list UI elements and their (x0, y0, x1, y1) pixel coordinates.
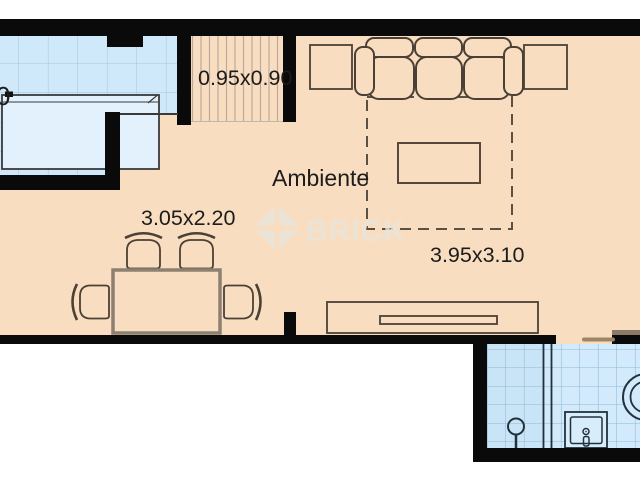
floorplan-drawing: Ambiente 0.95x0.90 3.05x2.20 3.95x3.10 0… (0, 0, 640, 480)
top-wall (0, 19, 640, 36)
chair-seat (224, 286, 253, 319)
floorplan: Ambiente 0.95x0.90 3.05x2.20 3.95x3.10 0… (0, 0, 640, 480)
tv-cabinet (327, 302, 538, 333)
coffee-table (398, 143, 480, 183)
closet-left-wall (177, 36, 191, 125)
bathroom-left-wall (473, 335, 487, 462)
dining-dimension-label: 3.05x2.20 (141, 206, 235, 230)
bottom-wall (0, 335, 556, 344)
dining-table (113, 270, 220, 333)
chair-seat (180, 240, 213, 269)
living-dimension-label: 3.95x3.10 (430, 243, 524, 267)
brand-watermark-text: BRICK (306, 215, 406, 248)
kitchen-bottom-wall (0, 175, 120, 190)
top-wall-pillar (107, 36, 143, 47)
bathroom-right-wall (612, 334, 640, 344)
room-label: Ambiente (272, 165, 369, 191)
chair-seat (127, 240, 160, 269)
kitchen-counter (2, 92, 159, 170)
tv (380, 316, 497, 324)
sink (565, 412, 607, 448)
side-table-right (524, 45, 567, 89)
edge-partial-label: 0 (0, 81, 10, 111)
bathroom-bottom-wall (473, 448, 640, 462)
door-threshold (612, 330, 640, 335)
side-table-left (310, 45, 352, 89)
closet-dimension-label: 0.95x0.90 (198, 66, 292, 90)
sofa (355, 38, 523, 99)
wall-stub (284, 312, 296, 335)
chair-seat (80, 286, 109, 319)
